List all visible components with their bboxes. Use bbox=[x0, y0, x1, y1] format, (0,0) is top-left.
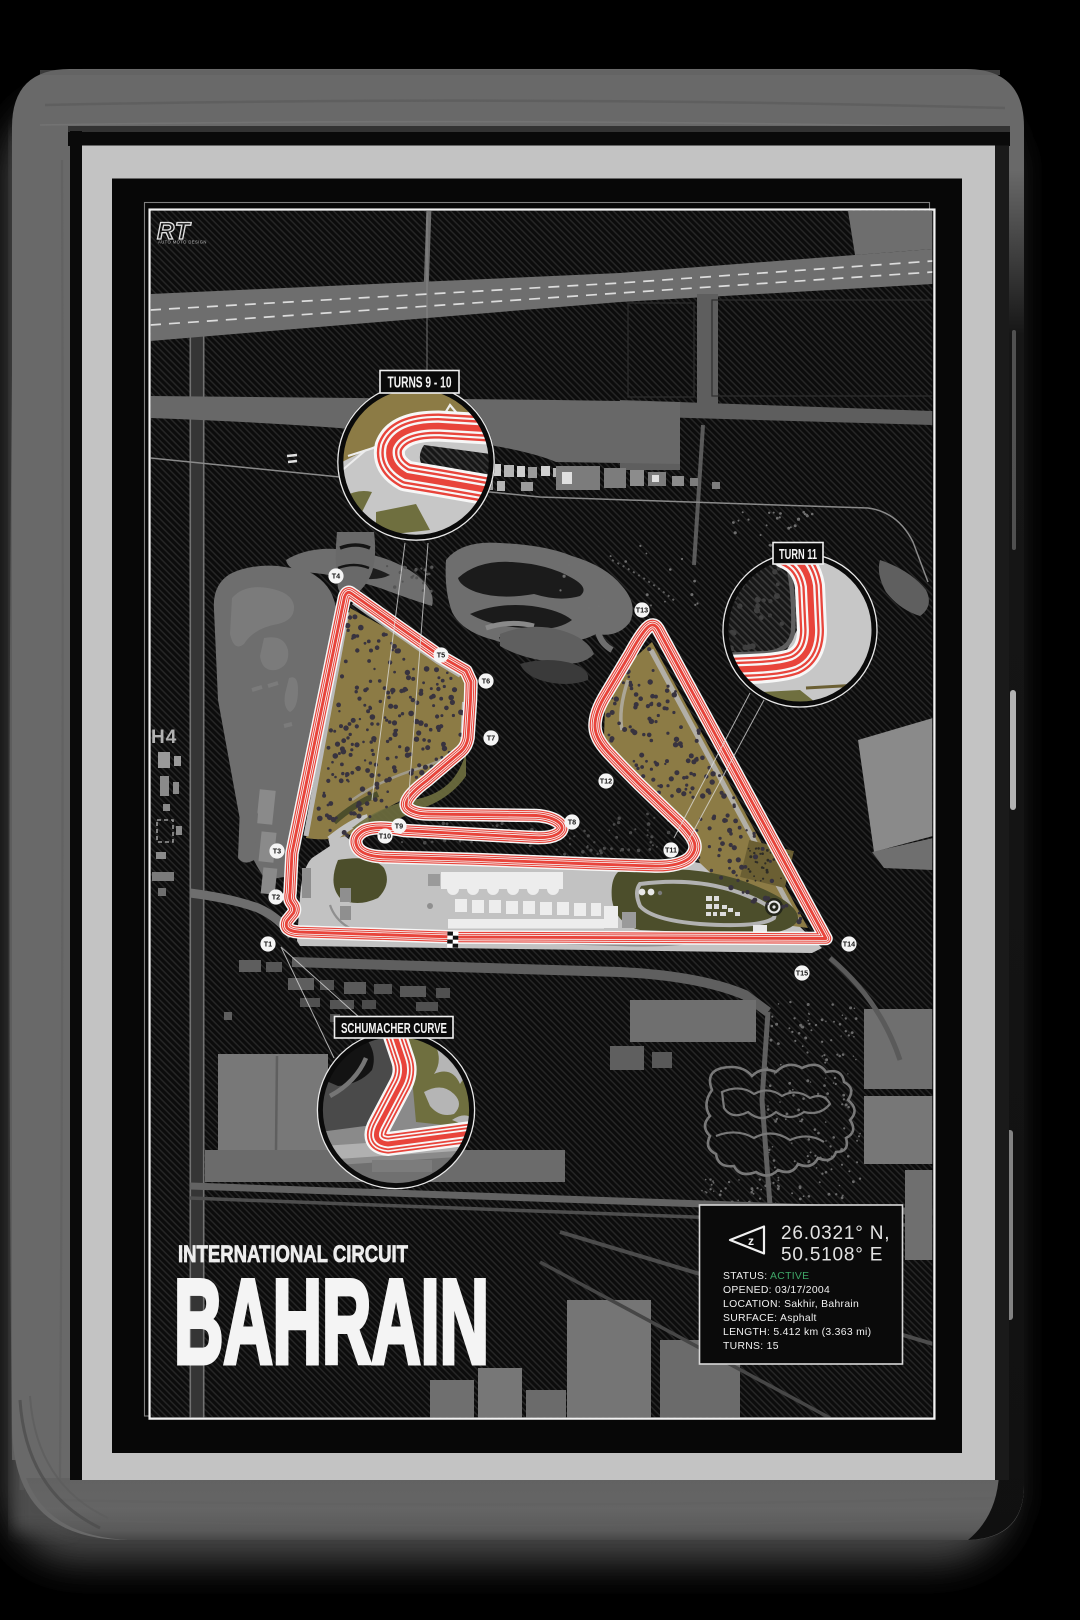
svg-text:T15: T15 bbox=[796, 969, 808, 978]
svg-text:50.5108° E: 50.5108° E bbox=[781, 1245, 883, 1266]
svg-text:T4: T4 bbox=[332, 572, 340, 581]
svg-text:T10: T10 bbox=[379, 832, 391, 841]
svg-text:STATUS: ACTIVE: STATUS: ACTIVE bbox=[723, 1271, 809, 1282]
svg-text:SCHUMACHER CURVE: SCHUMACHER CURVE bbox=[341, 1020, 447, 1037]
svg-text:T5: T5 bbox=[437, 651, 445, 660]
svg-text:T8: T8 bbox=[568, 818, 576, 827]
svg-text:T3: T3 bbox=[273, 847, 281, 856]
svg-text:LOCATION: Sakhir, Bahrain: LOCATION: Sakhir, Bahrain bbox=[723, 1299, 859, 1310]
svg-text:T1: T1 bbox=[264, 940, 272, 949]
svg-text:T14: T14 bbox=[843, 940, 855, 949]
svg-text:TURNS: 15: TURNS: 15 bbox=[723, 1341, 779, 1352]
svg-text:T9: T9 bbox=[395, 822, 403, 831]
svg-text:T11: T11 bbox=[665, 846, 677, 855]
svg-text:TURNS 9 - 10: TURNS 9 - 10 bbox=[388, 375, 452, 392]
svg-text:z: z bbox=[748, 1234, 754, 1248]
svg-text:OPENED: 03/17/2004: OPENED: 03/17/2004 bbox=[723, 1285, 830, 1296]
svg-text:T7: T7 bbox=[487, 734, 495, 743]
svg-text:LENGTH: 5.412 km (3.363 mi): LENGTH: 5.412 km (3.363 mi) bbox=[723, 1327, 871, 1338]
svg-text:AUTO MOTO DESIGN: AUTO MOTO DESIGN bbox=[158, 240, 207, 245]
svg-text:26.0321° N,: 26.0321° N, bbox=[781, 1223, 890, 1244]
svg-text:BAHRAIN: BAHRAIN bbox=[174, 1255, 489, 1389]
svg-text:SURFACE: Asphalt: SURFACE: Asphalt bbox=[723, 1313, 817, 1324]
svg-text:H4: H4 bbox=[151, 727, 177, 748]
svg-text:T6: T6 bbox=[482, 677, 490, 686]
svg-text:TURN 11: TURN 11 bbox=[779, 546, 817, 563]
svg-text:T12: T12 bbox=[600, 777, 612, 786]
svg-text:T13: T13 bbox=[636, 606, 648, 615]
svg-text:T2: T2 bbox=[272, 893, 280, 902]
